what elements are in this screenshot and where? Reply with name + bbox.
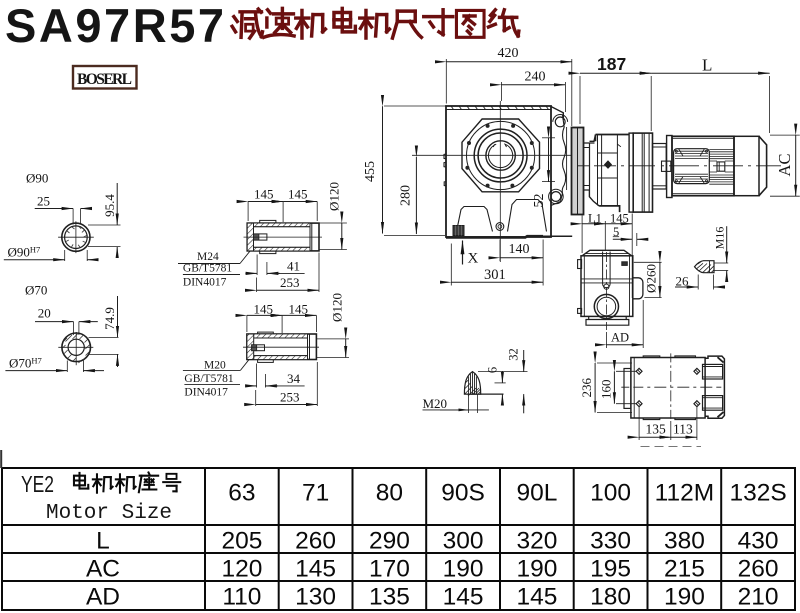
svg-text:180: 180 (590, 584, 631, 611)
svg-text:6: 6 (486, 367, 500, 373)
svg-text:90L: 90L (516, 480, 557, 507)
svg-text:AC: AC (775, 154, 794, 177)
svg-text:80: 80 (376, 480, 403, 507)
svg-text:145: 145 (254, 187, 274, 202)
svg-text:190: 190 (516, 556, 557, 583)
svg-text:34: 34 (287, 371, 301, 386)
svg-text:260: 260 (295, 528, 336, 555)
svg-text:253: 253 (280, 390, 300, 405)
svg-text:90S: 90S (441, 480, 485, 507)
svg-text:L: L (96, 528, 110, 555)
svg-text:41: 41 (287, 259, 300, 274)
svg-text:195: 195 (590, 556, 631, 583)
svg-text:Motor Size: Motor Size (46, 502, 172, 525)
svg-text:160: 160 (598, 379, 613, 399)
svg-text:380: 380 (664, 528, 705, 555)
svg-text:240: 240 (525, 70, 546, 85)
svg-text:M20: M20 (423, 396, 448, 411)
svg-text:M20: M20 (204, 360, 226, 372)
svg-text:300: 300 (443, 528, 484, 555)
svg-text:AD: AD (86, 584, 120, 611)
svg-text:Ø260: Ø260 (644, 264, 659, 293)
svg-text:210: 210 (738, 584, 779, 611)
svg-text:145: 145 (254, 302, 274, 317)
svg-text:145: 145 (289, 302, 309, 317)
svg-text:AD: AD (611, 331, 629, 345)
svg-text:260: 260 (738, 556, 779, 583)
svg-text:20: 20 (38, 306, 51, 321)
svg-text:187: 187 (597, 54, 626, 74)
svg-text:YE2: YE2 (21, 471, 54, 497)
svg-text:DIN4017: DIN4017 (183, 277, 227, 289)
svg-text:420: 420 (498, 46, 519, 61)
svg-text:145: 145 (295, 556, 336, 583)
svg-text:120: 120 (221, 556, 262, 583)
svg-text:M24: M24 (197, 251, 219, 263)
svg-text:26: 26 (676, 274, 690, 289)
svg-text:132S: 132S (729, 480, 786, 507)
svg-text:455: 455 (363, 161, 378, 182)
svg-text:145: 145 (516, 584, 557, 611)
svg-text:112M: 112M (655, 480, 714, 507)
svg-text:BOSERL: BOSERL (77, 71, 132, 88)
svg-text:190: 190 (443, 556, 484, 583)
svg-text:71: 71 (302, 480, 329, 507)
svg-text:215: 215 (664, 556, 705, 583)
svg-text:L: L (702, 56, 712, 75)
svg-text:430: 430 (738, 528, 779, 555)
svg-text:135: 135 (369, 584, 410, 611)
svg-text:135: 135 (646, 422, 667, 437)
svg-text:145: 145 (288, 187, 308, 202)
svg-text:290: 290 (369, 528, 410, 555)
svg-text:113: 113 (673, 422, 693, 437)
svg-text:100: 100 (590, 480, 631, 507)
svg-text:Ø70: Ø70 (25, 283, 47, 298)
svg-text:280: 280 (399, 185, 414, 206)
svg-text:236: 236 (579, 378, 594, 398)
svg-text:X: X (468, 251, 479, 267)
svg-text:Ø120: Ø120 (327, 182, 342, 211)
svg-text:110: 110 (222, 584, 261, 611)
svg-text:190: 190 (664, 584, 705, 611)
svg-text:AC: AC (86, 556, 120, 583)
svg-text:GB/T5781: GB/T5781 (184, 373, 233, 385)
svg-text:74.9: 74.9 (102, 307, 117, 330)
svg-text:52: 52 (532, 194, 547, 208)
svg-text:301: 301 (484, 267, 506, 283)
svg-text:170: 170 (369, 556, 410, 583)
svg-text:Ø90: Ø90 (26, 171, 48, 186)
svg-text:253: 253 (280, 275, 300, 290)
svg-text:M16: M16 (713, 227, 727, 250)
svg-text:32: 32 (507, 348, 521, 361)
svg-text:63: 63 (228, 480, 255, 507)
svg-text:25: 25 (37, 194, 50, 209)
svg-text:95.4: 95.4 (102, 194, 117, 217)
svg-text:205: 205 (221, 528, 262, 555)
svg-text:145: 145 (443, 584, 484, 611)
svg-text:140: 140 (509, 242, 530, 257)
svg-text:GB/T5781: GB/T5781 (183, 263, 232, 275)
svg-text:130: 130 (295, 584, 336, 611)
svg-text:320: 320 (516, 528, 557, 555)
svg-text:330: 330 (590, 528, 631, 555)
svg-text:DIN4017: DIN4017 (184, 387, 228, 399)
svg-text:Ø120: Ø120 (330, 293, 345, 322)
